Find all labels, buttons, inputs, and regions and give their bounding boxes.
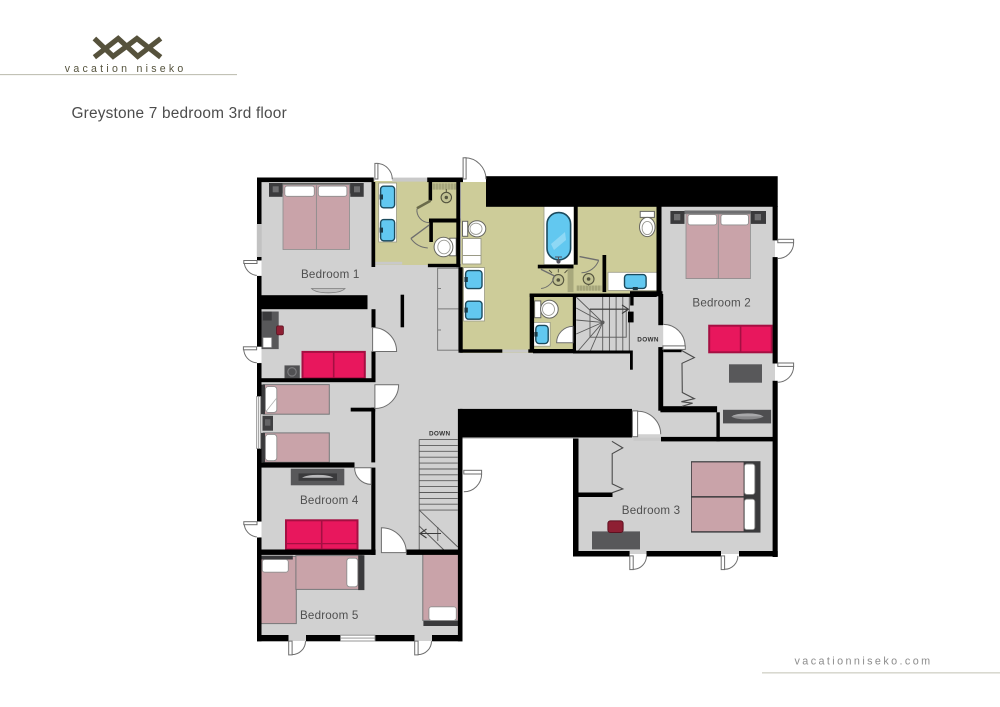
svg-text:Bedroom 1: Bedroom 1 [301, 268, 360, 281]
svg-text:vacationniseko.com: vacationniseko.com [795, 656, 933, 668]
svg-text:DOWN: DOWN [429, 430, 451, 437]
svg-text:Bedroom 3: Bedroom 3 [622, 504, 681, 517]
svg-text:Bedroom 5: Bedroom 5 [300, 609, 359, 622]
svg-text:DOWN: DOWN [637, 336, 659, 343]
svg-text:Greystone 7 bedroom 3rd floor: Greystone 7 bedroom 3rd floor [72, 105, 287, 122]
svg-text:Bedroom 2: Bedroom 2 [692, 297, 751, 310]
svg-text:Bedroom 4: Bedroom 4 [300, 494, 359, 507]
svg-text:vacation niseko: vacation niseko [65, 63, 187, 75]
